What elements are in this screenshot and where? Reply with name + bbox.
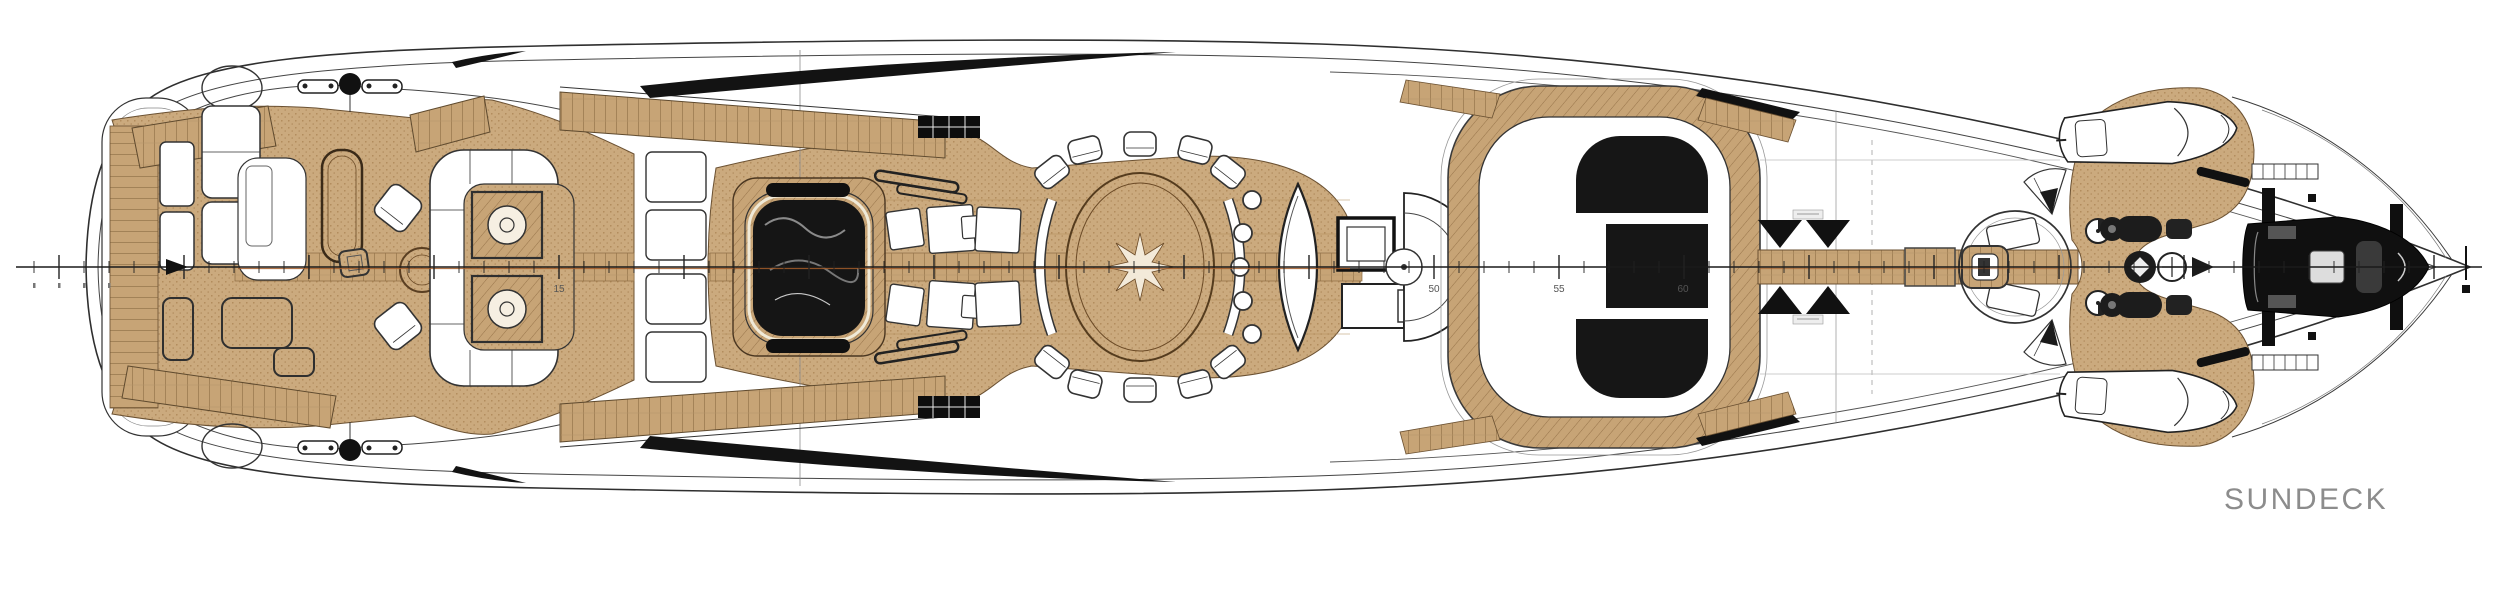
lamp-table [472,276,542,342]
sundeck-plan-drawing: 15 50 55 60 [0,0,2502,600]
deck-locker [163,298,193,360]
stool [338,248,369,278]
deck-label: SUNDECK [2224,483,2388,517]
jet-skis [2100,292,2192,318]
dining-chair [1124,378,1156,402]
dining-chair [1124,132,1156,156]
station-label: 50 [1428,284,1440,295]
rail-fitting [2308,332,2316,340]
pergola-grate [918,116,980,138]
deck-locker [274,348,314,376]
sundeck-plan-page: 15 50 55 60 SUNDECK [0,0,2502,600]
pergola-grate [918,396,980,418]
sun-pad-cluster [886,280,1022,329]
rail-fitting [2308,194,2316,202]
station-label: 15 [553,284,565,295]
lamp-table [472,192,542,258]
console-cabinet [1342,284,1404,328]
sun-pad-cluster [886,204,1022,253]
station-label: 60 [1677,284,1689,295]
boarding-ladder [2252,164,2318,179]
deck-locker [222,298,292,348]
sun-pad [160,142,194,206]
sun-pad [160,212,194,270]
station-label: 55 [1553,284,1565,295]
jet-skis [2100,216,2192,242]
boarding-ladder [2252,355,2318,370]
